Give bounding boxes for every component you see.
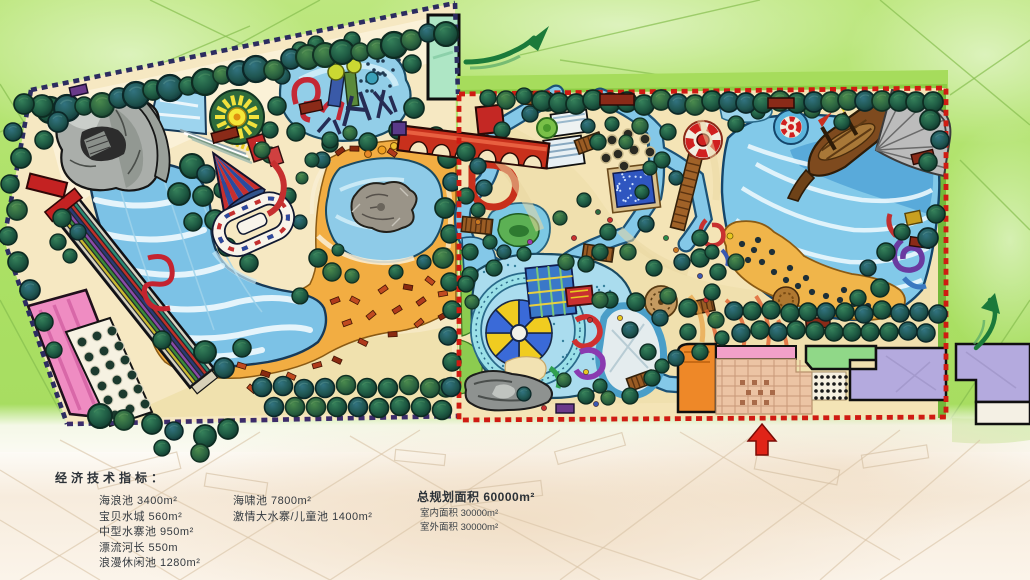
svg-text:室外面积 30000m²: 室外面积 30000m² bbox=[420, 521, 498, 533]
svg-text:漂流河长 550m: 漂流河长 550m bbox=[99, 540, 178, 554]
svg-text:中型水寨池 950m²: 中型水寨池 950m² bbox=[99, 524, 194, 538]
svg-text:宝贝水城 560m²: 宝贝水城 560m² bbox=[99, 509, 182, 523]
svg-text:总规划面积 60000m²: 总规划面积 60000m² bbox=[417, 489, 535, 504]
svg-text:室内面积 30000m²: 室内面积 30000m² bbox=[420, 507, 498, 519]
svg-text:海啸池 7800m²: 海啸池 7800m² bbox=[233, 493, 311, 507]
svg-text:经济技术指标：: 经济技术指标： bbox=[55, 470, 167, 485]
svg-text:激情大水寨/儿童池 1400m²: 激情大水寨/儿童池 1400m² bbox=[233, 509, 372, 523]
svg-text:海浪池 3400m²: 海浪池 3400m² bbox=[99, 493, 177, 507]
svg-text:浪漫休闲池 1280m²: 浪漫休闲池 1280m² bbox=[99, 555, 200, 569]
